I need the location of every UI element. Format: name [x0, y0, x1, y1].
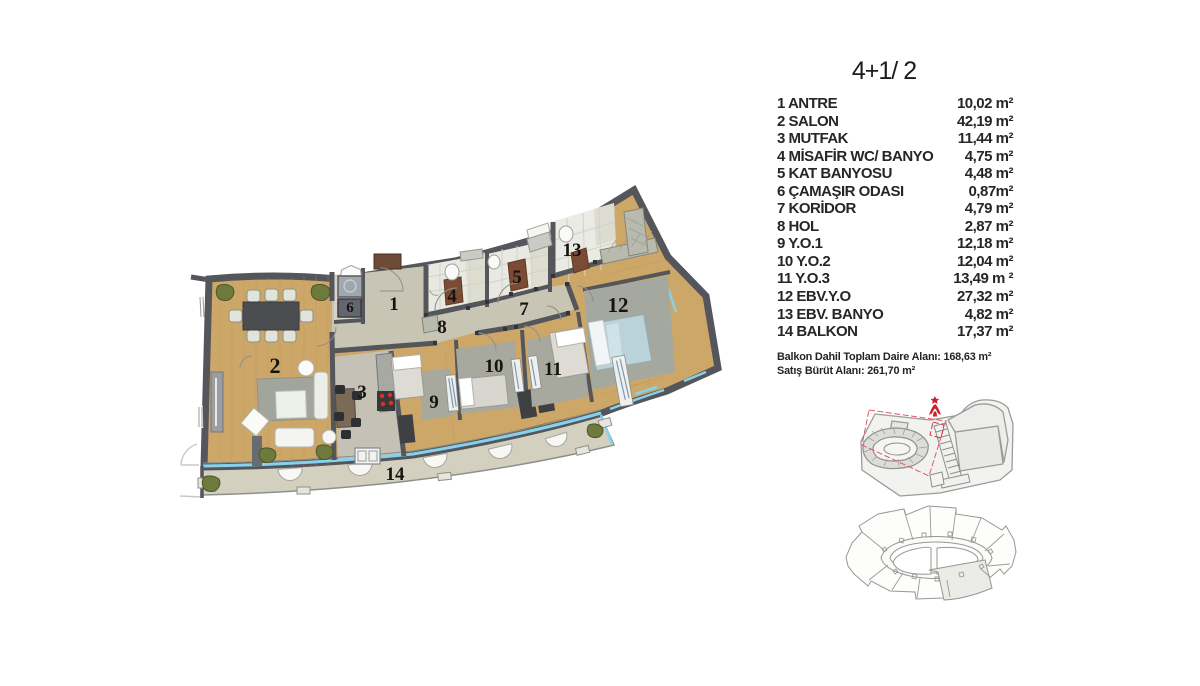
- svg-text:12: 12: [608, 293, 629, 317]
- svg-text:3: 3: [357, 382, 367, 403]
- svg-text:14: 14: [386, 464, 406, 485]
- svg-text:8: 8: [437, 317, 447, 338]
- svg-text:6: 6: [346, 300, 354, 316]
- svg-text:2: 2: [270, 353, 281, 378]
- svg-text:4: 4: [447, 286, 457, 307]
- svg-text:9: 9: [429, 392, 439, 413]
- svg-text:1: 1: [389, 294, 399, 315]
- svg-text:13: 13: [563, 240, 582, 261]
- svg-text:5: 5: [512, 267, 522, 288]
- svg-text:11: 11: [544, 359, 562, 380]
- svg-text:7: 7: [519, 299, 529, 320]
- svg-text:10: 10: [485, 356, 504, 377]
